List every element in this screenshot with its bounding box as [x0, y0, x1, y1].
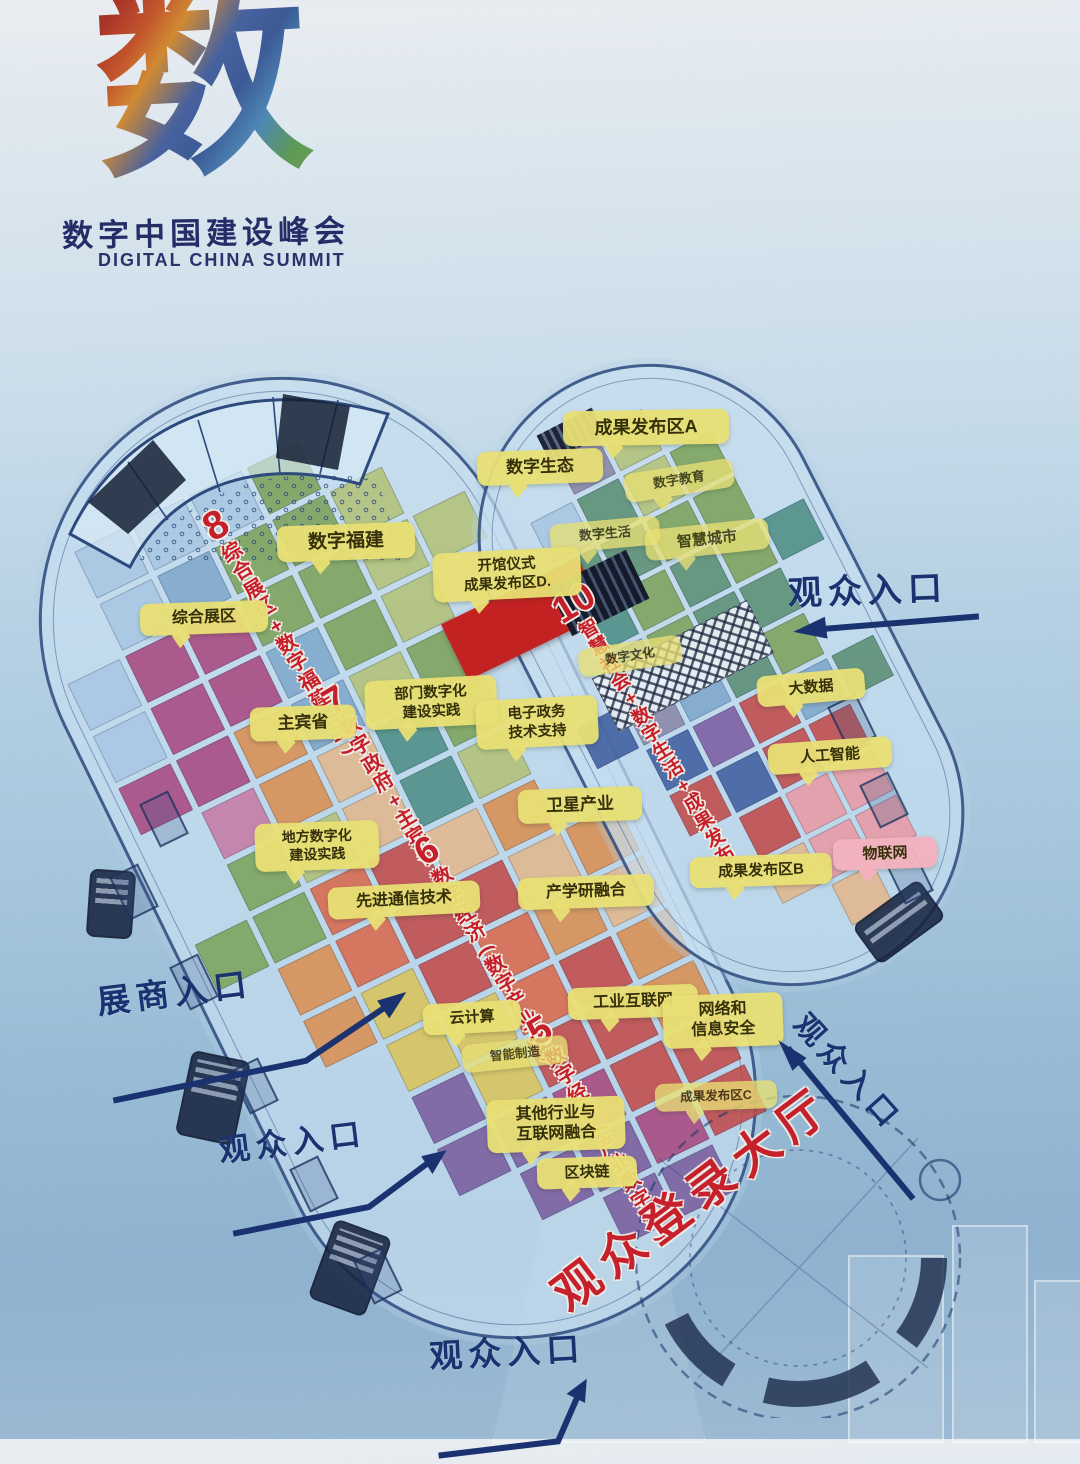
entrance-label: 观众入口: [787, 559, 985, 615]
zone-label-e-gov-support: 电子政务技术支持: [475, 695, 599, 750]
venue-map-poster: 数 数字中国建设峰会 DIGITAL CHINA SUMMIT 8综合展区+数字…: [0, 0, 1080, 1439]
zone-label-text: 物联网: [840, 842, 931, 864]
zone-label-digital-ecology: 数字生态: [476, 448, 603, 486]
zone-label-text: 智能制造: [468, 1041, 561, 1067]
zone-label-text: 人工智能: [774, 742, 885, 769]
zone-label-general-zone: 综合展区: [139, 600, 268, 637]
zone-label-cloud-computing: 云计算: [422, 999, 521, 1035]
zone-label-text: 主宾省: [257, 710, 350, 735]
zone-label-text: 产学研融合: [525, 880, 648, 905]
logo-title: 数字中国建设峰会: [62, 205, 351, 255]
zone-label-text: 先进通信技术: [335, 886, 474, 914]
logo-glyph: 数: [90, 0, 316, 192]
zone-label-opening-results-d: 开馆仪式成果发布区D.: [432, 546, 582, 603]
zone-label-industry-academia: 产学研融合: [517, 874, 654, 911]
zone-label-digital-fujian: 数字福建: [276, 522, 415, 563]
zone-label-iot: 物联网: [832, 836, 937, 871]
zone-label-blockchain: 区块链: [536, 1155, 637, 1190]
zone-label-text: 信息安全: [670, 1019, 777, 1043]
zone-label-text: 数字生活: [556, 522, 653, 547]
entrance-arrow-icon: [431, 1369, 611, 1464]
zone-label-results-b: 成果发布区B: [689, 853, 832, 889]
zone-label-text: 数字生态: [484, 454, 597, 480]
zone-label-text: 智慧城市: [651, 524, 762, 555]
zone-label-other-industries: 其他行业与互联网融合: [486, 1096, 626, 1154]
zone-label-results-a: 成果发布区A: [563, 409, 730, 447]
zone-label-local-digitalization: 地方数字化建设实践: [254, 820, 380, 872]
summit-logo: 数 数字中国建设峰会 DIGITAL CHINA SUMMIT: [40, 0, 400, 290]
zone-label-text: 区块链: [544, 1162, 631, 1184]
zone-label-text: 互联网融合: [494, 1122, 619, 1147]
zone-label-text: 建设实践: [262, 844, 373, 866]
visitor-entrance-ne: 观众入口: [787, 559, 985, 641]
visitor-entrance-s: 观众入口: [428, 1321, 611, 1464]
logo-subtitle: DIGITAL CHINA SUMMIT: [98, 250, 346, 271]
zone-label-text: 云计算: [430, 1006, 515, 1030]
zone-label-text: 卫星产业: [525, 792, 636, 818]
zone-label-network-security: 网络和信息安全: [662, 992, 784, 1049]
zone-label-text: 大数据: [763, 674, 858, 701]
zone-label-text: 成果发布区B: [697, 859, 826, 883]
zone-label-text: 数字福建: [284, 528, 409, 557]
zone-label-satellite-industry: 卫星产业: [517, 786, 642, 824]
building-silhouette: [1034, 1280, 1080, 1443]
zone-label-text: 综合展区: [147, 606, 262, 630]
entrance-label: 观众入口: [428, 1321, 606, 1378]
zone-label-text: 成果发布区A: [570, 415, 722, 441]
zone-label-host-province: 主宾省: [249, 704, 356, 741]
